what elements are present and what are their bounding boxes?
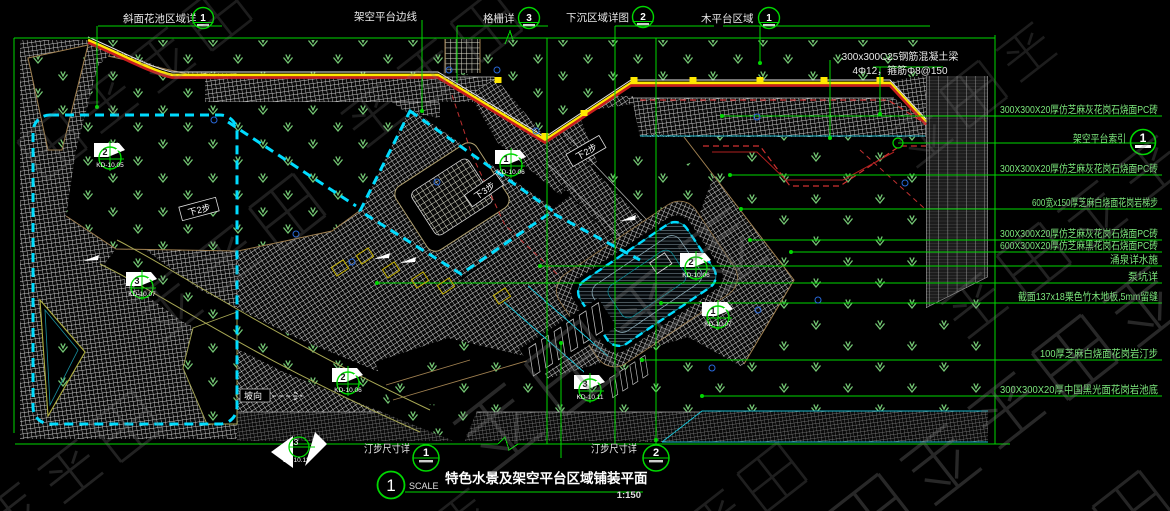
- svg-text:KD-10.06: KD-10.06: [682, 272, 710, 279]
- svg-text:坡向: 坡向: [244, 390, 262, 401]
- svg-text:2: 2: [102, 147, 107, 157]
- svg-text:3: 3: [294, 437, 299, 447]
- svg-text:汀步尺寸详: 汀步尺寸详: [364, 442, 410, 455]
- svg-text:2: 2: [340, 372, 345, 382]
- svg-text:300x300C25钢筋混凝土梁: 300x300C25钢筋混凝土梁: [842, 50, 959, 63]
- svg-text:下沉区域详图: 下沉区域详图: [566, 11, 629, 24]
- svg-text:KD-10.06: KD-10.06: [497, 169, 525, 176]
- svg-text:1: 1: [503, 154, 508, 164]
- svg-text:1:150: 1:150: [617, 490, 641, 501]
- svg-text:汀步尺寸详: 汀步尺寸详: [591, 442, 637, 455]
- svg-text:1: 1: [423, 447, 429, 459]
- svg-text:300X300X20厚仿芝麻灰花岗石烧面PC砖: 300X300X20厚仿芝麻灰花岗石烧面PC砖: [1000, 103, 1158, 116]
- svg-text:1: 1: [1140, 131, 1147, 145]
- svg-text:涌泉详水施: 涌泉详水施: [1110, 253, 1158, 266]
- svg-text:LD-10.11: LD-10.11: [283, 457, 310, 464]
- svg-text:3: 3: [134, 276, 139, 286]
- svg-text:架空平台索引: 架空平台索引: [1073, 132, 1126, 145]
- svg-text:KD-10.06: KD-10.06: [334, 387, 362, 394]
- svg-text:1: 1: [386, 476, 395, 495]
- svg-text:KD-10.07: KD-10.07: [704, 321, 732, 328]
- svg-text:100厚芝麻白烧面花岗岩汀步: 100厚芝麻白烧面花岗岩汀步: [1040, 347, 1158, 360]
- svg-text:木平台区域: 木平台区域: [701, 12, 754, 25]
- svg-text:1: 1: [710, 306, 715, 316]
- svg-text:SCALE: SCALE: [409, 481, 439, 491]
- svg-text:架空平台边线: 架空平台边线: [354, 10, 417, 23]
- svg-text:4Φ12，箍筋Φ8@150: 4Φ12，箍筋Φ8@150: [852, 64, 947, 77]
- svg-text:特色水景及架空平台区域铺装平面: 特色水景及架空平台区域铺装平面: [445, 470, 648, 486]
- svg-text:KD-10.05: KD-10.05: [96, 162, 124, 169]
- svg-text:2: 2: [653, 447, 659, 459]
